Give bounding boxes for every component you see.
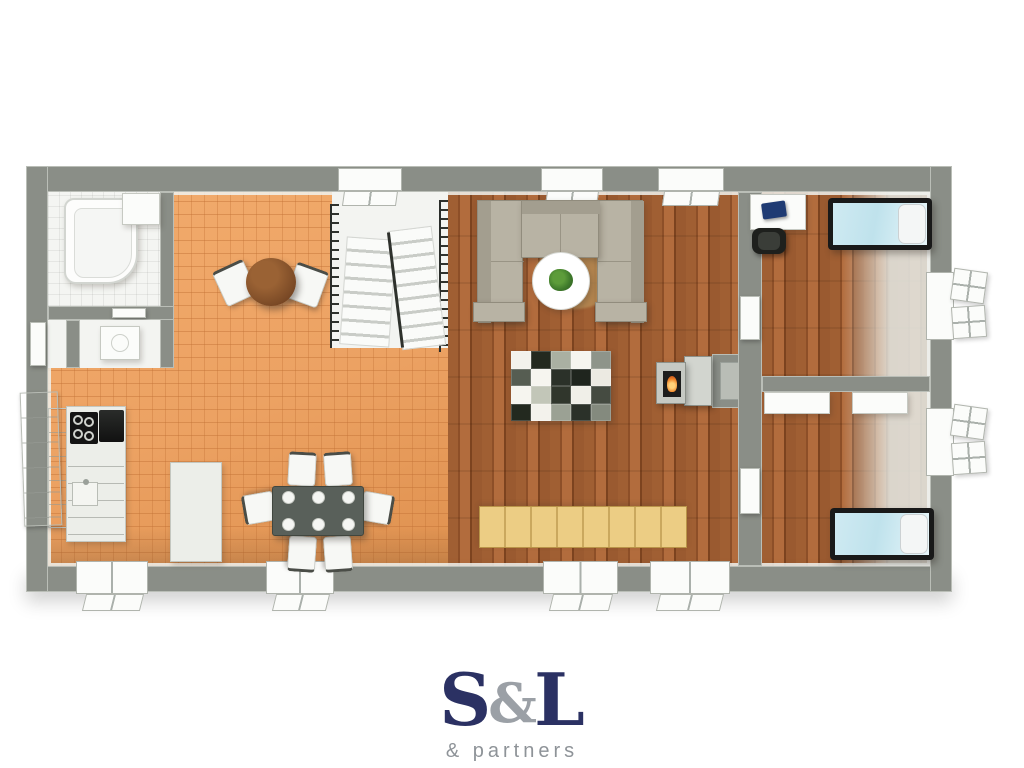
kitchen-exterior-door: [20, 391, 63, 526]
rug-patch: [571, 351, 591, 369]
rug-patch: [511, 369, 531, 387]
bed-1-pillow: [898, 204, 926, 244]
washbasin-counter: [122, 193, 160, 225]
window-bedroom-2-sash: [950, 404, 988, 440]
dining-chair: [323, 535, 353, 573]
faucet: [83, 479, 89, 485]
office-chair: [752, 228, 786, 254]
window-bedroom-2-sash: [951, 441, 987, 475]
dining-chair: [359, 490, 396, 525]
sofa-seam: [491, 261, 524, 262]
entry-door-left: [30, 322, 46, 366]
logo-ampersand: &: [488, 671, 537, 735]
burner: [73, 415, 83, 425]
burner: [84, 417, 94, 427]
window-bedroom-1: [926, 272, 954, 340]
rug-patch: [551, 404, 571, 422]
sofa-seam: [598, 261, 631, 262]
logo-main: S&L: [0, 664, 1024, 736]
rug-patch: [571, 369, 591, 387]
bathroom-wall-right: [160, 192, 174, 368]
rug-patch: [591, 369, 611, 387]
firebox: [663, 371, 681, 397]
vestibule-floor: [48, 320, 66, 368]
patchwork-rug: [511, 351, 611, 421]
laptop: [761, 200, 787, 219]
bed-2-pillow: [900, 514, 928, 554]
dining-chair: [287, 451, 317, 486]
kitchen-island: [170, 462, 222, 562]
toilet-bowl: [111, 334, 129, 352]
rug-patch: [551, 351, 571, 369]
logo: S&L & partners: [0, 664, 1024, 763]
office-chair-pad: [758, 232, 780, 250]
wood-stove-mantel: [684, 356, 712, 406]
place-setting: [312, 518, 325, 531]
cooktop: [70, 412, 98, 444]
bedrooms-middle-wall: [762, 376, 930, 392]
logo-subtitle: & partners: [0, 740, 1024, 763]
window-bottom-3: [543, 561, 618, 594]
place-setting: [282, 518, 295, 531]
bed-2: [830, 508, 934, 560]
outer-wall-left: [26, 166, 48, 592]
rug-patch: [511, 386, 531, 404]
rug-patch: [531, 404, 551, 422]
dining-chair: [323, 451, 353, 487]
rug-patch: [531, 386, 551, 404]
floor-plan: [0, 0, 1024, 768]
bedroom-2-door: [740, 468, 760, 514]
rug-patch: [511, 404, 531, 422]
wood-stove: [656, 362, 686, 404]
window-bottom-4-sash: [656, 594, 724, 611]
window-top-3-sash: [662, 191, 720, 206]
place-setting: [282, 491, 295, 504]
sofa-arm-cap: [595, 302, 647, 322]
bedroom-1-door: [740, 296, 760, 340]
sofa-center: [521, 200, 599, 258]
outer-wall-bottom: [26, 566, 952, 592]
sofa-arm-cap: [473, 302, 525, 322]
sofa-back: [522, 201, 600, 214]
place-setting: [342, 491, 355, 504]
rug-patch: [551, 369, 571, 387]
rug-patch: [551, 386, 571, 404]
window-bedroom-1-sash: [950, 268, 988, 304]
kitchen-sink: [72, 482, 98, 506]
window-bottom-1-sash: [82, 594, 144, 611]
burner: [73, 429, 83, 439]
rug-patch: [571, 386, 591, 404]
rug-patch: [591, 386, 611, 404]
bench-platform: [479, 506, 687, 548]
rug-patch: [591, 351, 611, 369]
wardrobe: [852, 392, 908, 414]
bathroom-wall-bottom: [48, 306, 174, 320]
window-top-2: [541, 168, 603, 191]
logo-letter-s: S: [439, 657, 491, 742]
window-bottom-1: [76, 561, 148, 594]
burner: [84, 431, 94, 441]
fire: [667, 376, 677, 392]
window-bottom-3-sash: [549, 594, 613, 611]
dining-chair: [287, 535, 317, 573]
oven: [99, 410, 124, 442]
window-bedroom-2: [926, 408, 954, 476]
bed-1: [828, 198, 932, 250]
window-bottom-2-sash: [272, 594, 330, 611]
outer-wall-top: [26, 166, 952, 192]
bathroom-door: [112, 308, 146, 318]
window-top-1-sash: [342, 191, 398, 206]
dining-table: [272, 486, 364, 536]
window-top-3: [658, 168, 724, 191]
toilet-room-wall: [66, 320, 80, 368]
window-top-1: [338, 168, 402, 191]
stair-railing-left: [330, 204, 339, 348]
rug-patch: [531, 351, 551, 369]
window-bottom-4: [650, 561, 730, 594]
stair-flight-left: [339, 236, 396, 347]
plant: [549, 269, 573, 291]
window-bedroom-1-sash: [951, 305, 987, 339]
rug-patch: [531, 369, 551, 387]
logo-letter-l: L: [534, 657, 585, 742]
place-setting: [342, 518, 355, 531]
wardrobe: [764, 392, 830, 414]
place-setting: [312, 491, 325, 504]
rug-patch: [571, 404, 591, 422]
toilet: [100, 326, 140, 360]
rug-patch: [591, 404, 611, 422]
bistro-table: [246, 258, 296, 306]
rug-patch: [511, 351, 531, 369]
